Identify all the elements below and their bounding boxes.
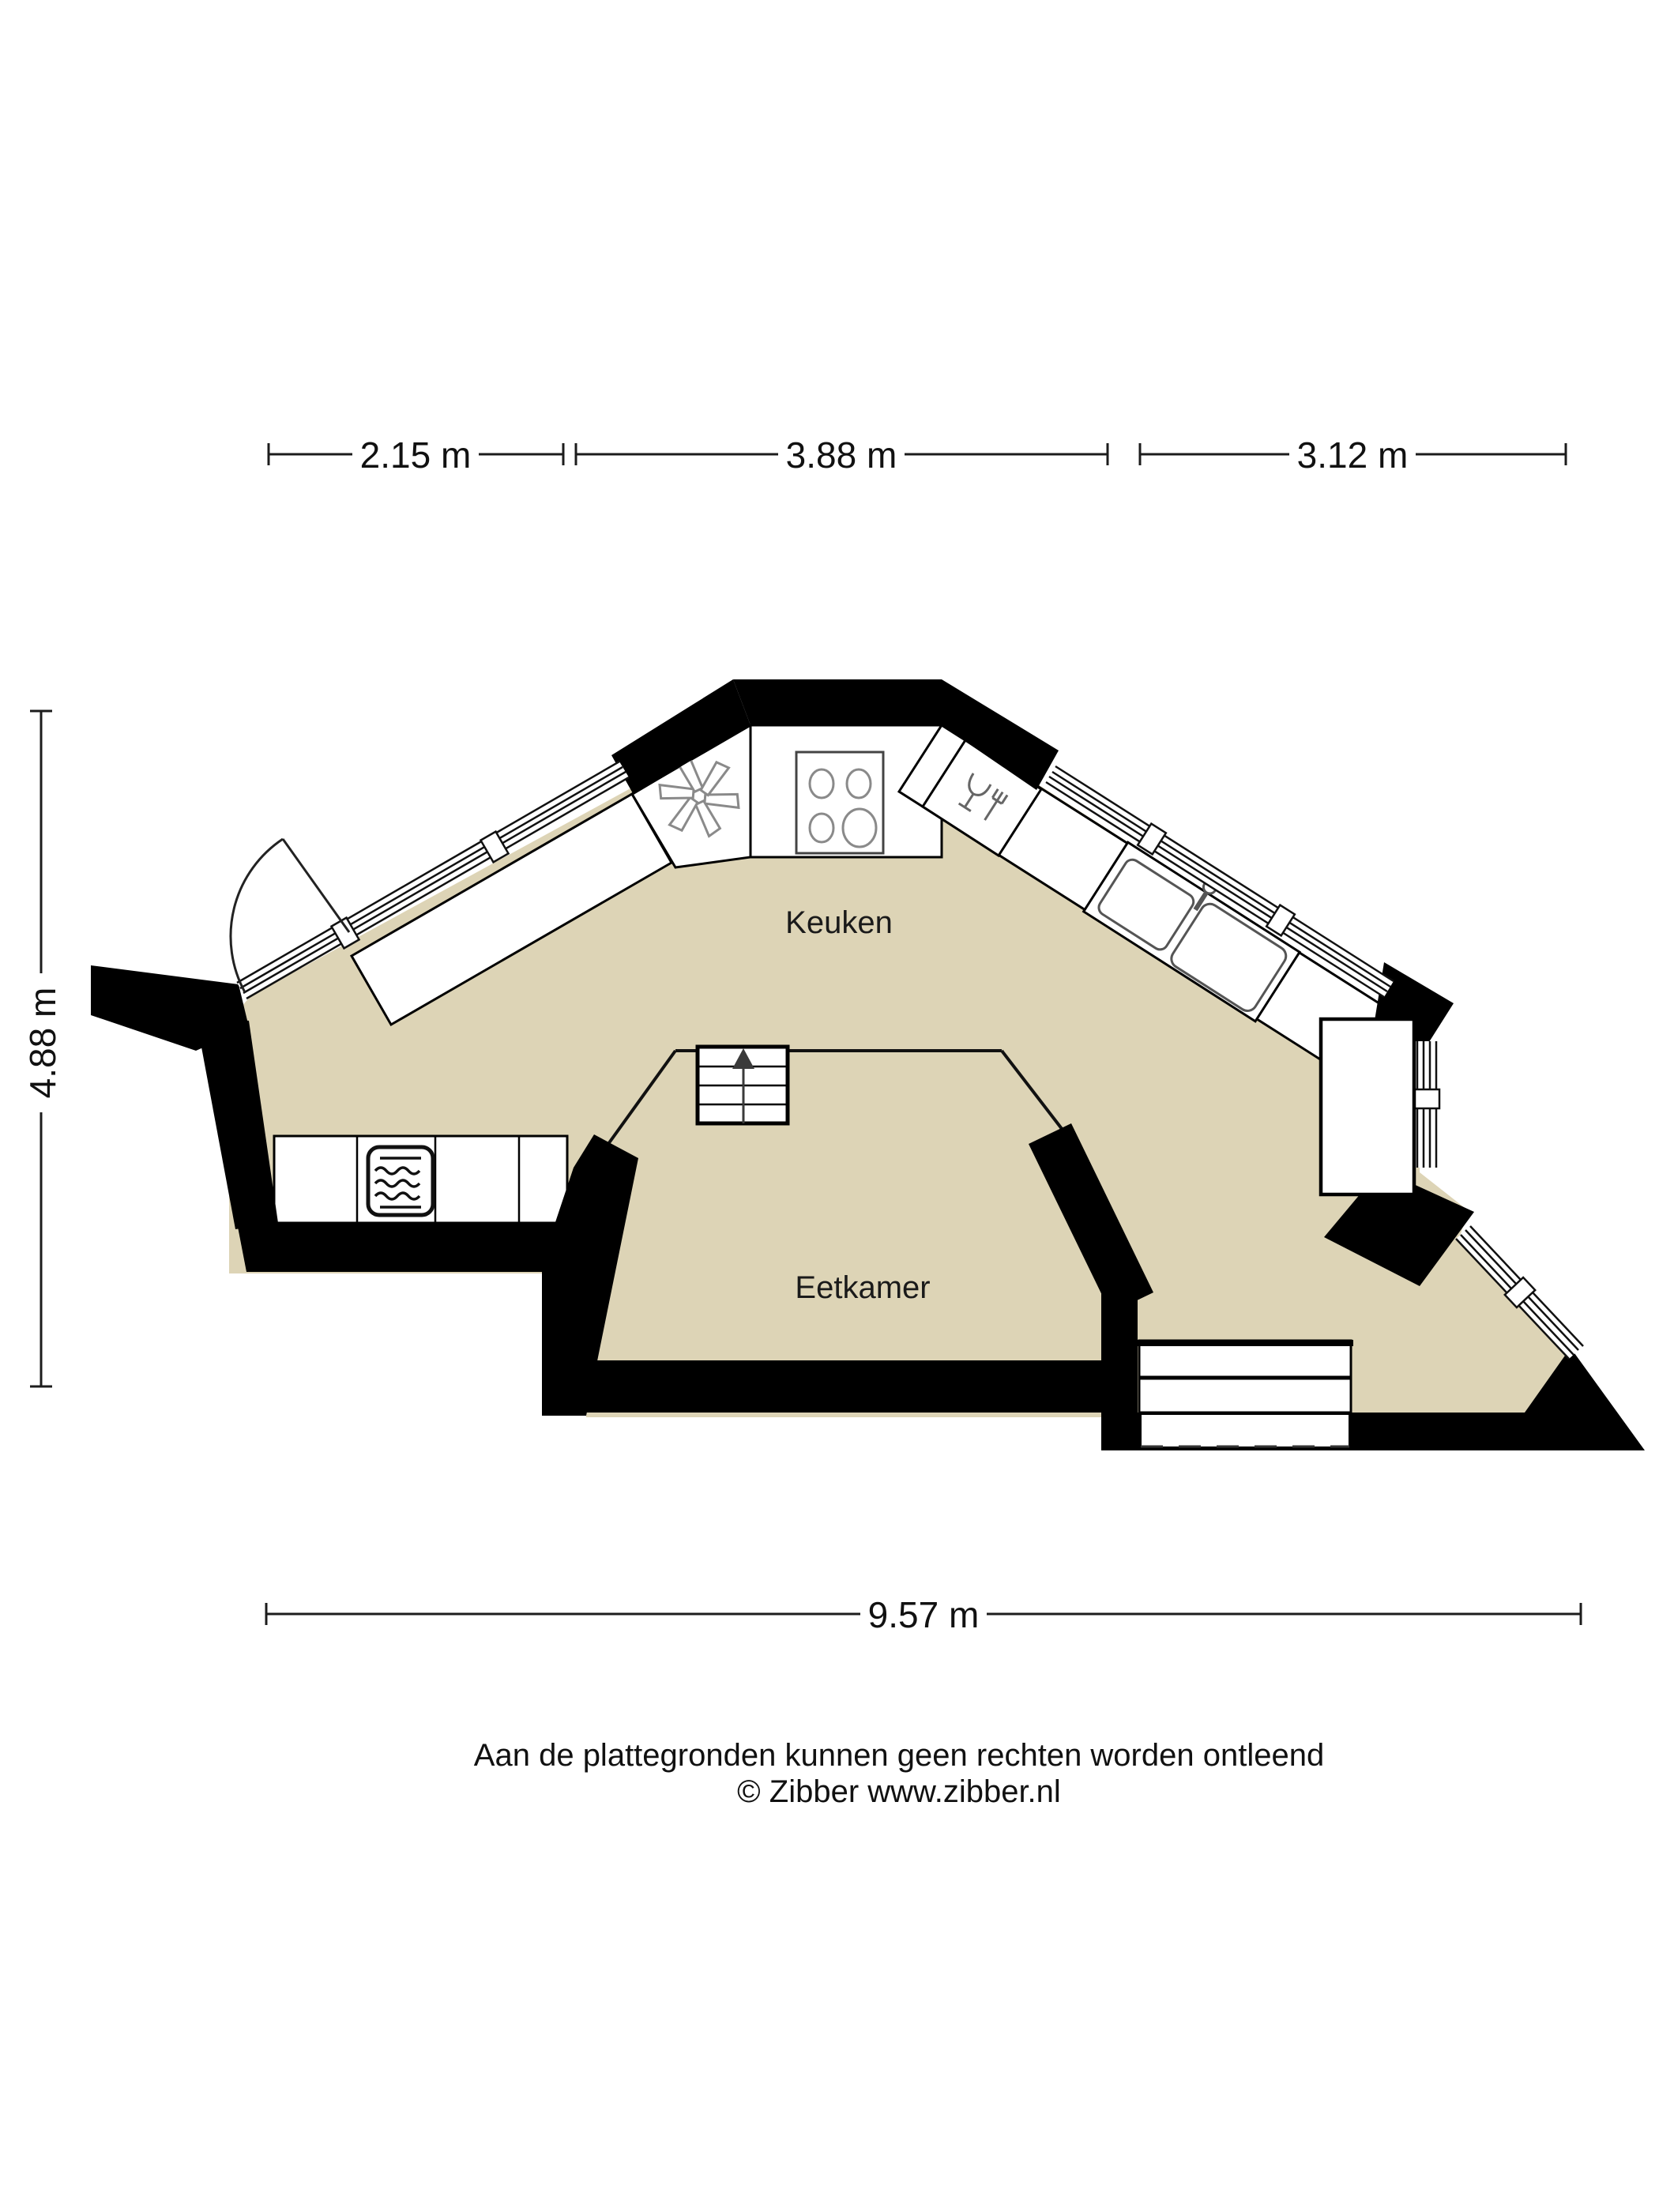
dim-bottom: 9.57 m bbox=[266, 1593, 1581, 1635]
room-label-dining: Eetkamer bbox=[795, 1270, 930, 1305]
microwave-icon bbox=[368, 1147, 433, 1215]
dim-top-1: 2.15 m bbox=[269, 434, 563, 476]
oven-counter bbox=[274, 1136, 567, 1223]
dim-label-bottom: 9.57 m bbox=[868, 1594, 980, 1635]
floorplan-canvas: 2.15 m 3.88 m 3.12 m 4.88 m bbox=[0, 0, 1659, 2212]
dim-left: 4.88 m bbox=[19, 711, 63, 1386]
dim-label-left: 4.88 m bbox=[22, 987, 63, 1099]
footer-credit: © Zibber www.zibber.nl bbox=[737, 1774, 1061, 1809]
tall-cabinet bbox=[1321, 1019, 1414, 1194]
cooktop-icon bbox=[796, 752, 883, 853]
dim-label-top-1: 2.15 m bbox=[360, 434, 472, 476]
dim-top-3: 3.12 m bbox=[1140, 434, 1566, 476]
dim-label-top-2: 3.88 m bbox=[786, 434, 897, 476]
dim-label-top-3: 3.12 m bbox=[1297, 434, 1409, 476]
stairs bbox=[698, 1047, 788, 1123]
wall-bottom-left bbox=[237, 1223, 586, 1272]
room-label-kitchen: Keuken bbox=[785, 905, 893, 940]
wall-top bbox=[733, 679, 942, 725]
dim-top-2: 3.88 m bbox=[576, 434, 1108, 476]
sideboard bbox=[1137, 1341, 1353, 1447]
footer-disclaimer: Aan de plattegronden kunnen geen rechten… bbox=[474, 1738, 1324, 1773]
wall-dining-bottom bbox=[544, 1360, 1138, 1413]
door-leaf bbox=[283, 839, 349, 932]
window-right bbox=[1414, 1041, 1439, 1168]
